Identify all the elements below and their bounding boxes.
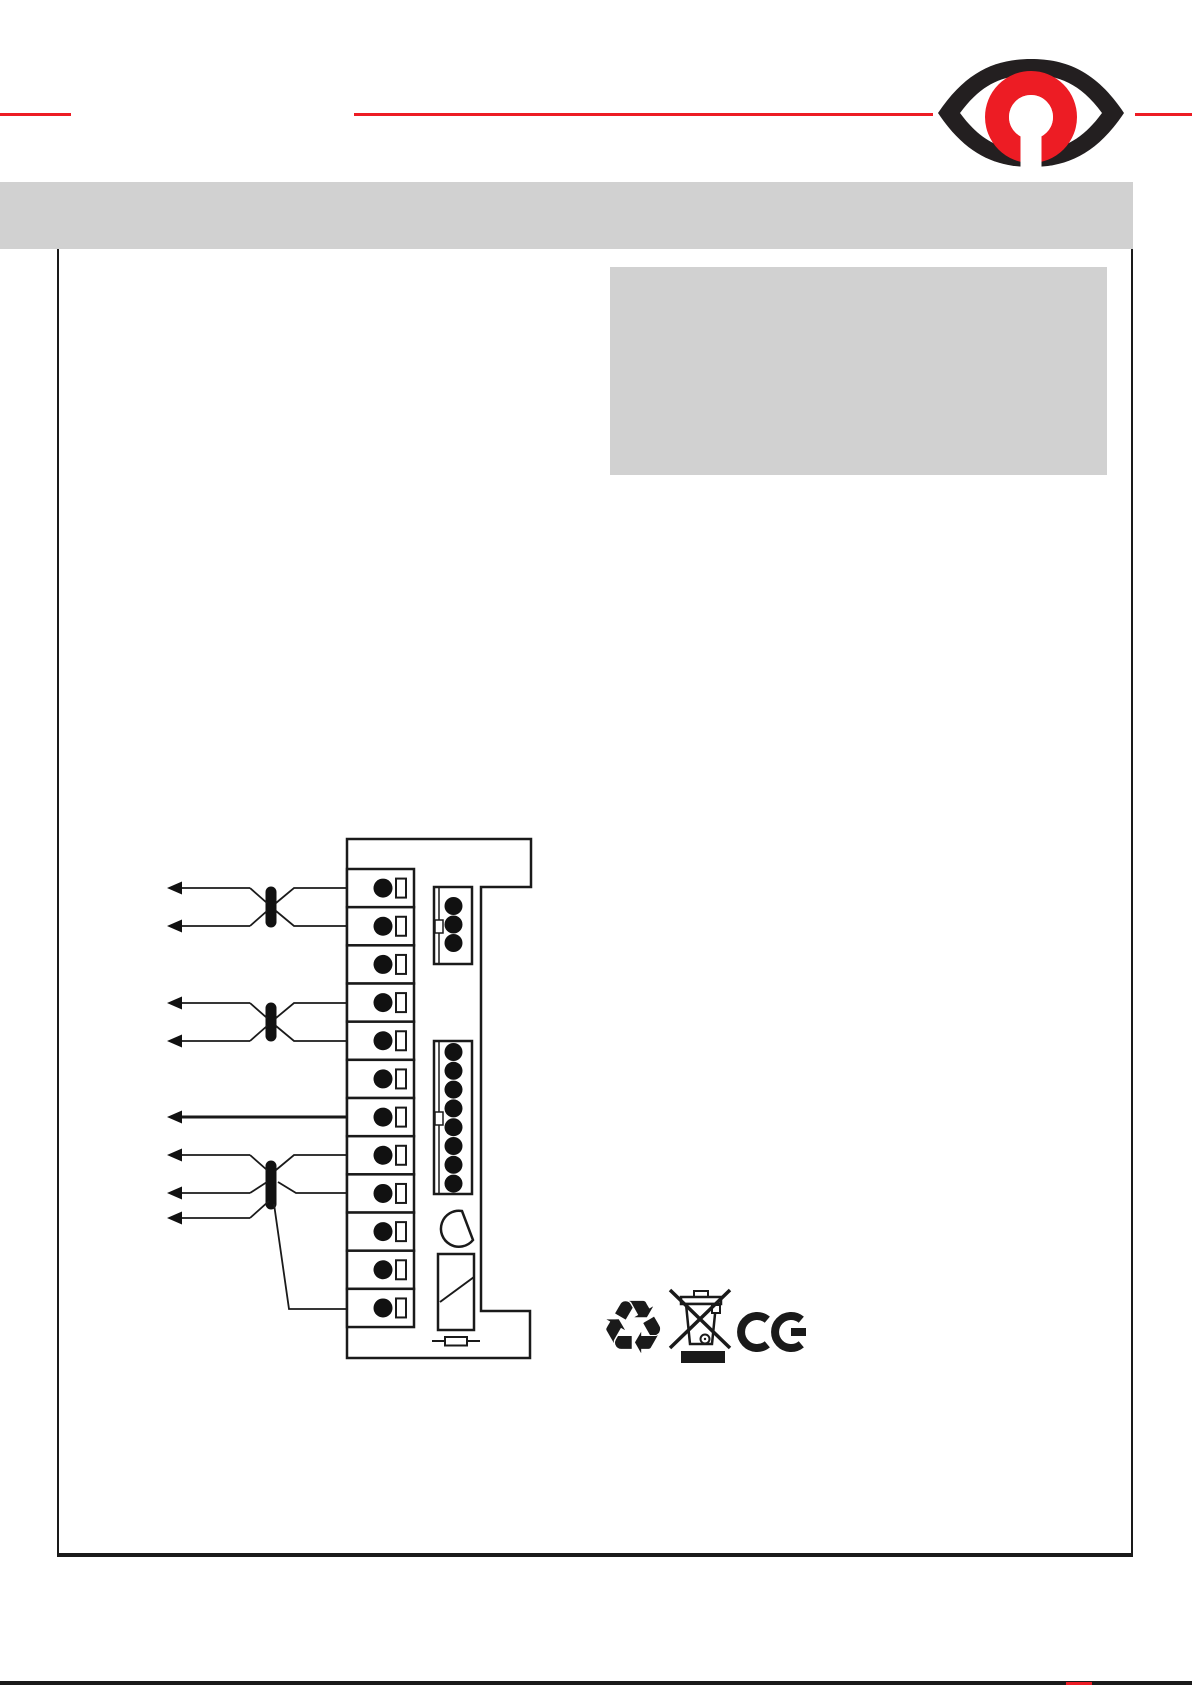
info-panel bbox=[610, 267, 1107, 475]
logo-keyhole-stem bbox=[1021, 117, 1042, 175]
eye-keyhole-logo bbox=[936, 55, 1126, 175]
title-bar bbox=[0, 182, 1133, 249]
header-rule-middle bbox=[354, 113, 933, 116]
page-bottom-rule bbox=[0, 1681, 1192, 1685]
header-rule-right bbox=[1135, 113, 1192, 116]
manual-page: { "page": { "width": 1192, "height": 168… bbox=[0, 0, 1192, 1685]
header-rule-left bbox=[0, 113, 71, 116]
